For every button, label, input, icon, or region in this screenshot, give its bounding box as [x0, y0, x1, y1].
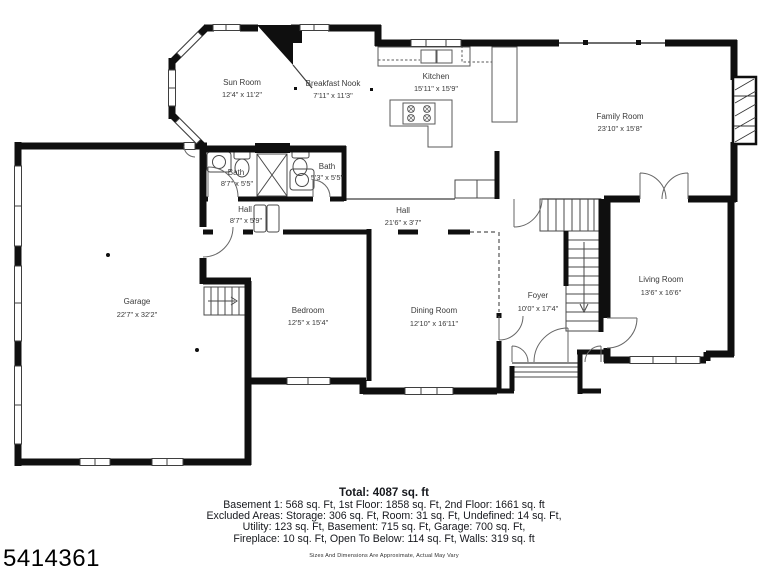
- svg-text:13'6" x 16'6": 13'6" x 16'6": [641, 288, 682, 297]
- door-swings: [184, 146, 688, 362]
- svg-text:10'0" x 17'4": 10'0" x 17'4": [518, 304, 559, 313]
- fireplace-icon: [733, 77, 756, 144]
- summary-line: Utility: 123 sq. Ft, Basement: 715 sq. F…: [0, 522, 768, 533]
- svg-text:Hall: Hall: [238, 205, 252, 214]
- room-label-hall-2: Hall 21'6" x 3'7": [385, 206, 422, 227]
- svg-text:12'5" x 15'4": 12'5" x 15'4": [288, 318, 329, 327]
- svg-text:Bath: Bath: [319, 162, 335, 171]
- windows: [15, 25, 701, 466]
- entry-steps: [514, 367, 578, 377]
- svg-text:Dining Room: Dining Room: [411, 306, 458, 315]
- svg-text:23'10" x 15'8": 23'10" x 15'8": [598, 124, 643, 133]
- room-label-breakfast-nook: Breakfast Nook 7'11" x 11'3": [306, 79, 362, 100]
- bath-fixtures: [207, 151, 314, 196]
- area-summary: Total: 4087 sq. ft Basement 1: 568 sq. F…: [0, 487, 768, 559]
- svg-text:Living Room: Living Room: [639, 275, 684, 284]
- svg-text:Hall: Hall: [396, 206, 410, 215]
- svg-text:Garage: Garage: [124, 297, 151, 306]
- room-label-sun-room: Sun Room 12'4" x 11'2": [222, 78, 262, 99]
- svg-text:Bedroom: Bedroom: [292, 306, 325, 315]
- room-label-garage: Garage 22'7" x 32'2": [117, 297, 158, 319]
- svg-text:Breakfast Nook: Breakfast Nook: [306, 79, 362, 88]
- svg-text:8'7" x 5'9": 8'7" x 5'9": [230, 216, 263, 225]
- svg-text:Bath: Bath: [228, 168, 244, 177]
- svg-text:21'6" x 3'7": 21'6" x 3'7": [385, 218, 422, 227]
- room-label-family-room: Family Room 23'10" x 15'8": [596, 112, 643, 133]
- room-label-foyer: Foyer 10'0" x 17'4": [518, 291, 559, 313]
- listing-id: 5414361: [3, 545, 100, 573]
- shower-icon: [257, 154, 287, 196]
- svg-text:Kitchen: Kitchen: [423, 72, 450, 81]
- svg-text:12'4" x 11'2": 12'4" x 11'2": [222, 90, 262, 99]
- closets: [254, 180, 499, 232]
- kitchen-counters: [378, 46, 517, 147]
- room-label-dining-room: Dining Room 12'10" x 16'11": [410, 306, 459, 328]
- stove-icon: [403, 103, 435, 124]
- svg-text:15'11" x 15'9": 15'11" x 15'9": [414, 84, 458, 93]
- svg-text:12'10" x 16'11": 12'10" x 16'11": [410, 319, 459, 328]
- room-label-kitchen: Kitchen 15'11" x 15'9": [414, 72, 458, 93]
- svg-text:Foyer: Foyer: [528, 291, 549, 300]
- wall-fills: [106, 25, 641, 352]
- disclaimer-text: Sizes And Dimensions Are Approximate, Ac…: [0, 553, 768, 559]
- svg-text:8'7" x 5'5": 8'7" x 5'5": [221, 179, 254, 188]
- interior-walls: [203, 146, 604, 394]
- svg-text:22'7" x 32'2": 22'7" x 32'2": [117, 310, 158, 319]
- room-label-bedroom: Bedroom 12'5" x 15'4": [288, 306, 329, 327]
- room-label-bath-2: Bath 5'3" x 5'5": [311, 162, 344, 182]
- svg-text:5'3" x 5'5": 5'3" x 5'5": [311, 173, 344, 182]
- svg-text:Family Room: Family Room: [596, 112, 643, 121]
- open-wall-dashes: [470, 232, 499, 312]
- summary-line: Fireplace: 10 sq. Ft, Open To Below: 114…: [0, 534, 768, 545]
- svg-text:7'11" x 11'3": 7'11" x 11'3": [313, 91, 353, 100]
- room-label-living-room: Living Room 13'6" x 16'6": [639, 275, 684, 297]
- exterior-walls: [15, 25, 737, 466]
- svg-text:Sun Room: Sun Room: [223, 78, 261, 87]
- garage-stairs: [204, 287, 246, 315]
